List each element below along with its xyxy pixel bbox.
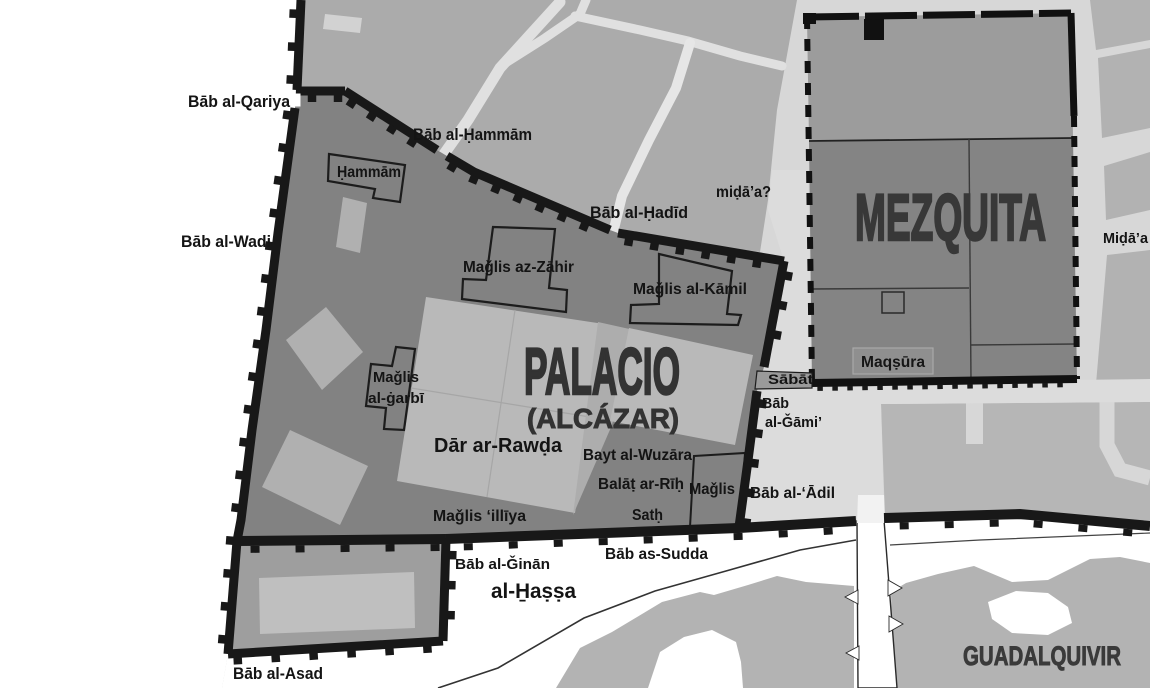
svg-text:Bāb al-‘Ādil: Bāb al-‘Ādil: [750, 483, 835, 502]
svg-text:(ALCÁZAR): (ALCÁZAR): [527, 403, 679, 434]
svg-text:Balāṭ ar-Rīḥ: Balāṭ ar-Rīḥ: [598, 476, 684, 493]
svg-text:Maǧlis az-Zāhir: Maǧlis az-Zāhir: [463, 259, 574, 276]
svg-text:Bāb as-Sudda: Bāb as-Sudda: [605, 546, 708, 563]
svg-text:al-ġarbī: al-ġarbī: [368, 390, 425, 407]
svg-text:Bāb al-Ḥammām: Bāb al-Ḥammām: [413, 125, 532, 144]
svg-text:MEZQUITA: MEZQUITA: [855, 180, 1046, 254]
svg-text:Bāb al-Qariya: Bāb al-Qariya: [188, 92, 291, 111]
svg-text:Maǧlis ‘illīya: Maǧlis ‘illīya: [433, 508, 526, 525]
svg-text:Maǧlis al-Kāmil: Maǧlis al-Kāmil: [633, 281, 747, 298]
svg-text:al-H̱aṣṣa: al-H̱aṣṣa: [491, 580, 576, 603]
svg-text:Maqṣūra: Maqṣūra: [861, 354, 925, 371]
svg-text:Maǧlis: Maǧlis: [689, 481, 735, 498]
svg-text:miḍā’a?: miḍā’a?: [716, 184, 771, 201]
svg-text:PALACIO: PALACIO: [524, 334, 680, 408]
svg-text:Bāb al-Wadi: Bāb al-Wadi: [181, 232, 271, 251]
svg-text:al-Ǧāmi’: al-Ǧāmi’: [765, 413, 822, 431]
svg-text:Satḥ: Satḥ: [632, 507, 663, 524]
svg-text:Miḍā’a: Miḍā’a: [1103, 230, 1149, 247]
svg-text:Bāb al-Asad: Bāb al-Asad: [233, 664, 323, 683]
svg-text:Bāb al-Ḥadīd: Bāb al-Ḥadīd: [590, 203, 688, 222]
svg-text:Ḥammām: Ḥammām: [337, 164, 401, 181]
svg-text:Bāb: Bāb: [762, 395, 789, 412]
svg-text:Sābāt: Sābāt: [768, 371, 813, 387]
svg-text:Dār ar-Rawḍa: Dār ar-Rawḍa: [434, 435, 563, 457]
svg-text:GUADALQUIVIR: GUADALQUIVIR: [963, 641, 1121, 671]
svg-text:Bayt al-Wuzāra: Bayt al-Wuzāra: [583, 447, 692, 464]
svg-text:Maǧlis: Maǧlis: [373, 369, 419, 386]
svg-text:Bāb al-Ǧinān: Bāb al-Ǧinān: [455, 555, 550, 573]
